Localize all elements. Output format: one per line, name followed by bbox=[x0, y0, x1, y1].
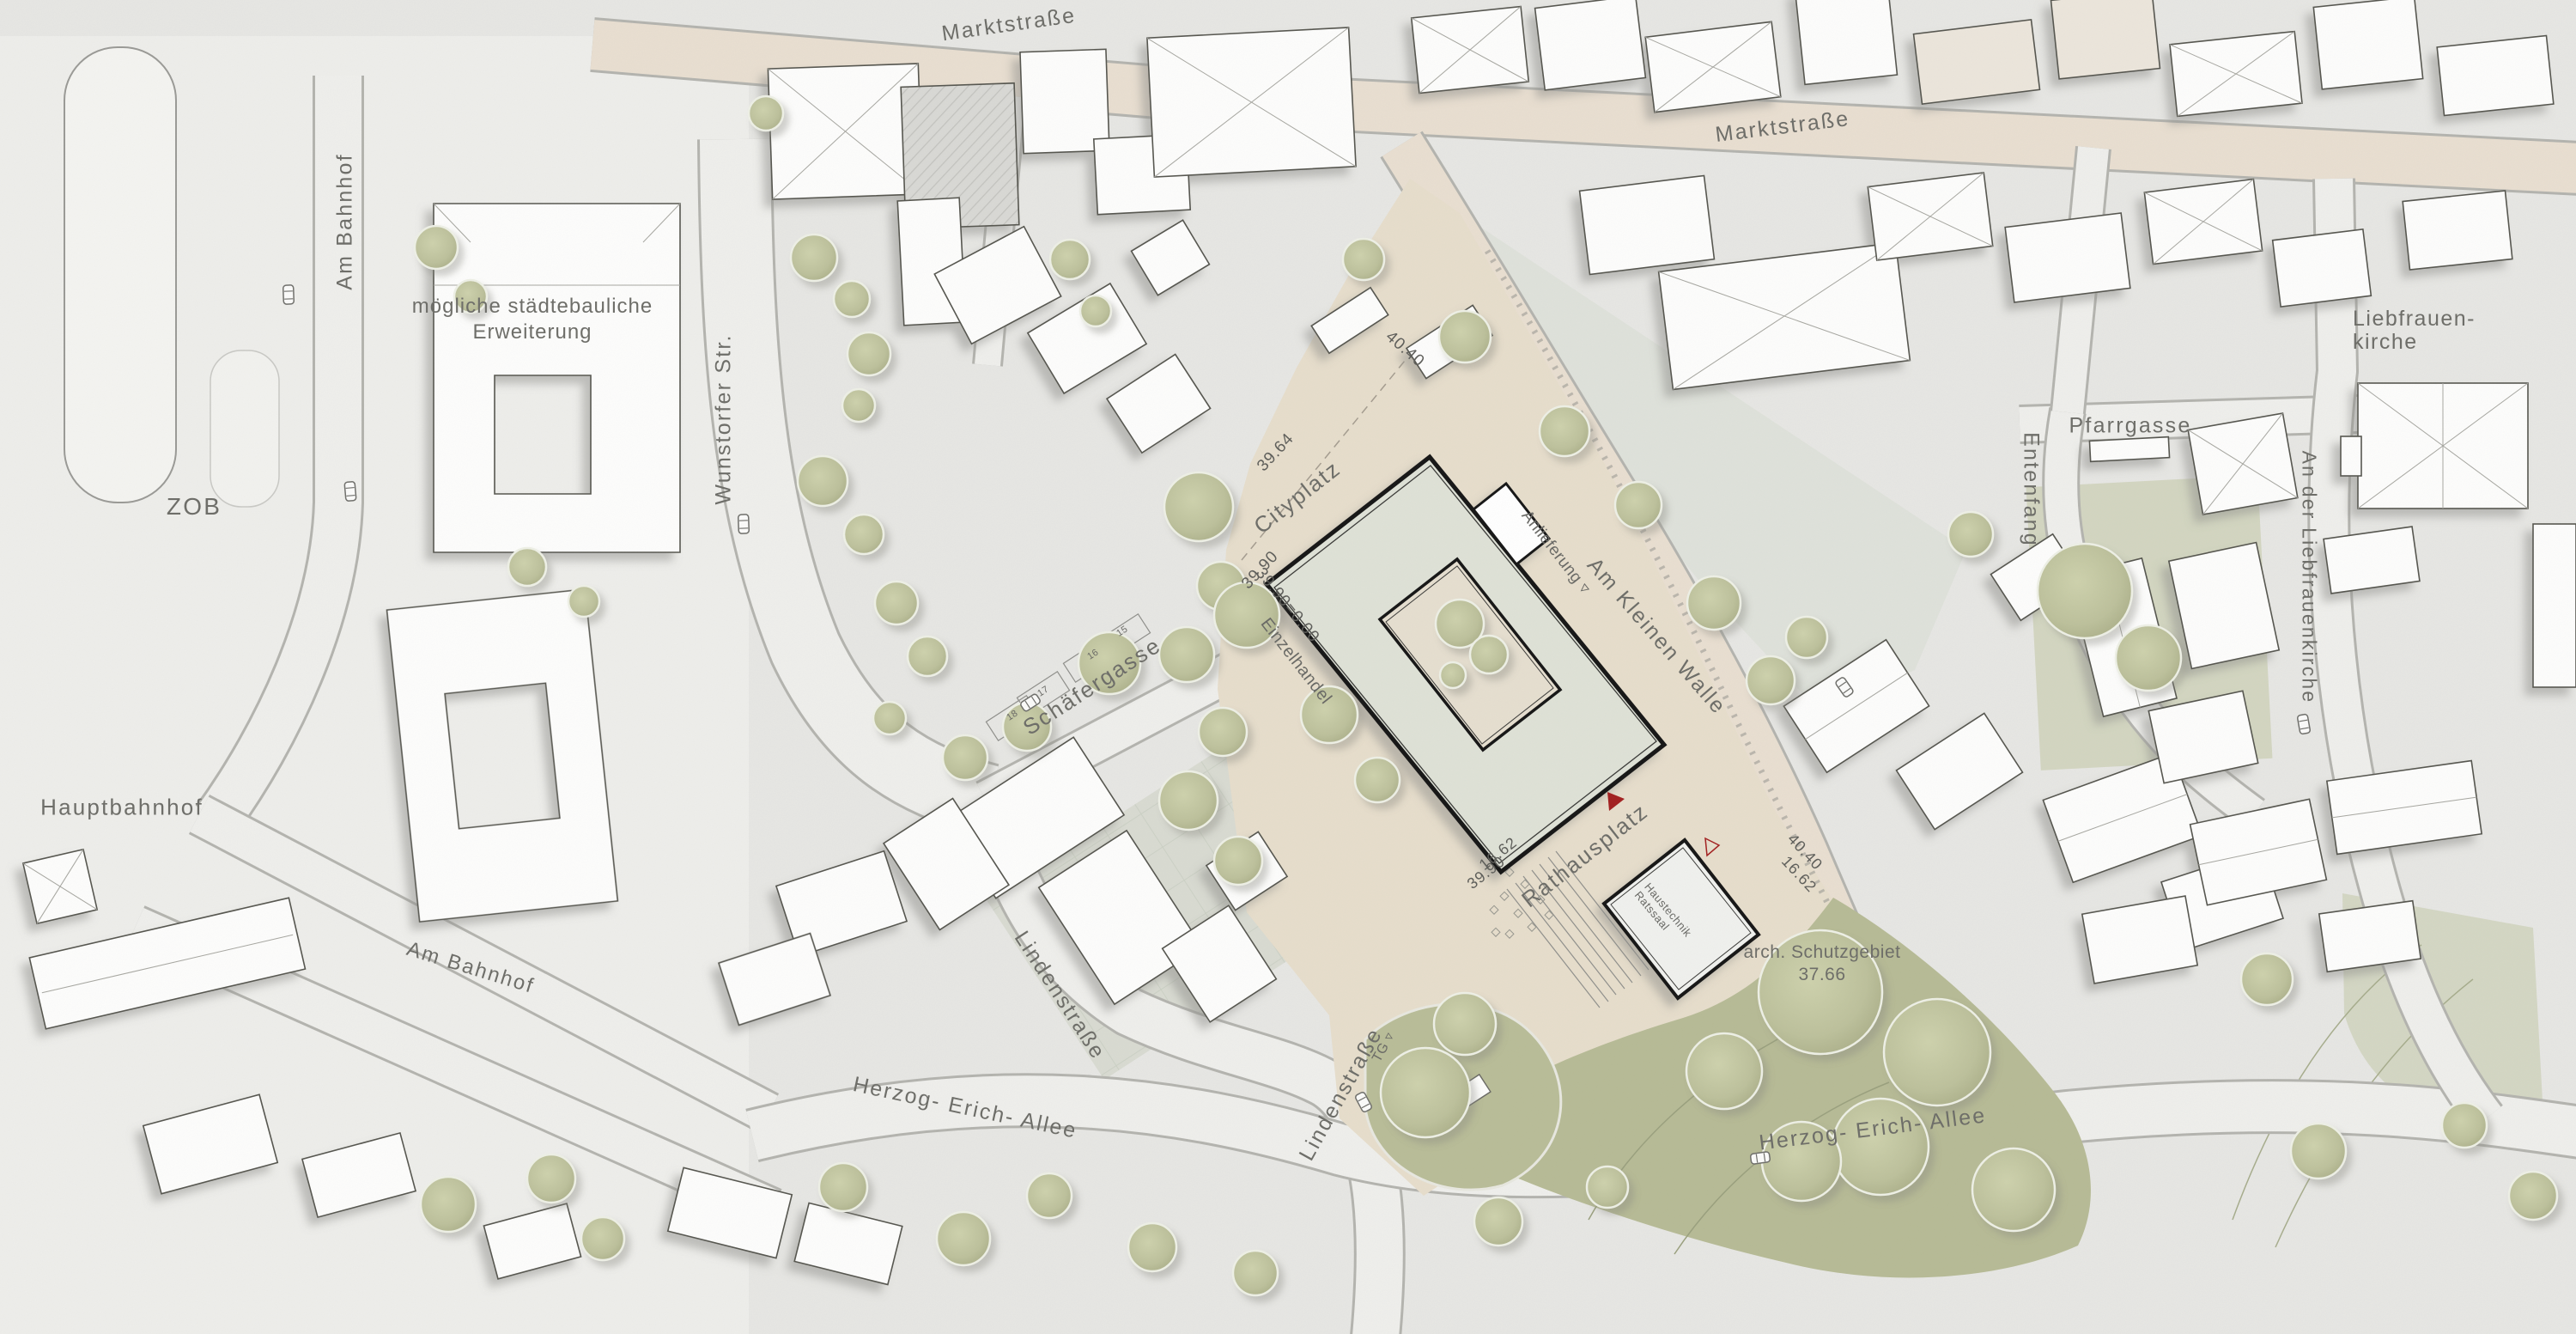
erweiterung-line1: mögliche städtebauliche bbox=[412, 295, 653, 318]
schutzgebiet-line2: 37.66 bbox=[1798, 965, 1845, 984]
liebfrauenkirche-line2: kirche bbox=[2353, 330, 2418, 354]
street-label-entenfang: Entenfang bbox=[2019, 432, 2044, 547]
place-label-liebfrauenkirche: Liebfrauen- kirche bbox=[2353, 308, 2476, 354]
street-label-am-bahnhof-west: Am Bahnhof bbox=[333, 153, 358, 290]
liebfrauenkirche-line1: Liebfrauen- bbox=[2353, 307, 2476, 331]
street-label-wunstorfer: Wunstorfer Str. bbox=[712, 333, 737, 504]
annotation-schutzgebiet: arch. Schutzgebiet 37.66 bbox=[1744, 941, 1901, 987]
street-label-an-der-liebfrauenkirche: An der Liebfrauenkirche bbox=[2298, 451, 2321, 704]
schutzgebiet-line1: arch. Schutzgebiet bbox=[1744, 942, 1901, 962]
street-label-pfarrgasse: Pfarrgasse bbox=[2069, 414, 2192, 439]
place-label-zob: ZOB bbox=[167, 493, 222, 521]
place-label-hauptbahnhof: Hauptbahnhof bbox=[40, 795, 204, 821]
annotation-erweiterung: mögliche städtebauliche Erweiterung bbox=[412, 294, 653, 345]
site-plan: Marktstraße Marktstraße Am Bahnhof mögli… bbox=[0, 0, 2576, 1334]
erweiterung-line2: Erweiterung bbox=[472, 320, 592, 344]
